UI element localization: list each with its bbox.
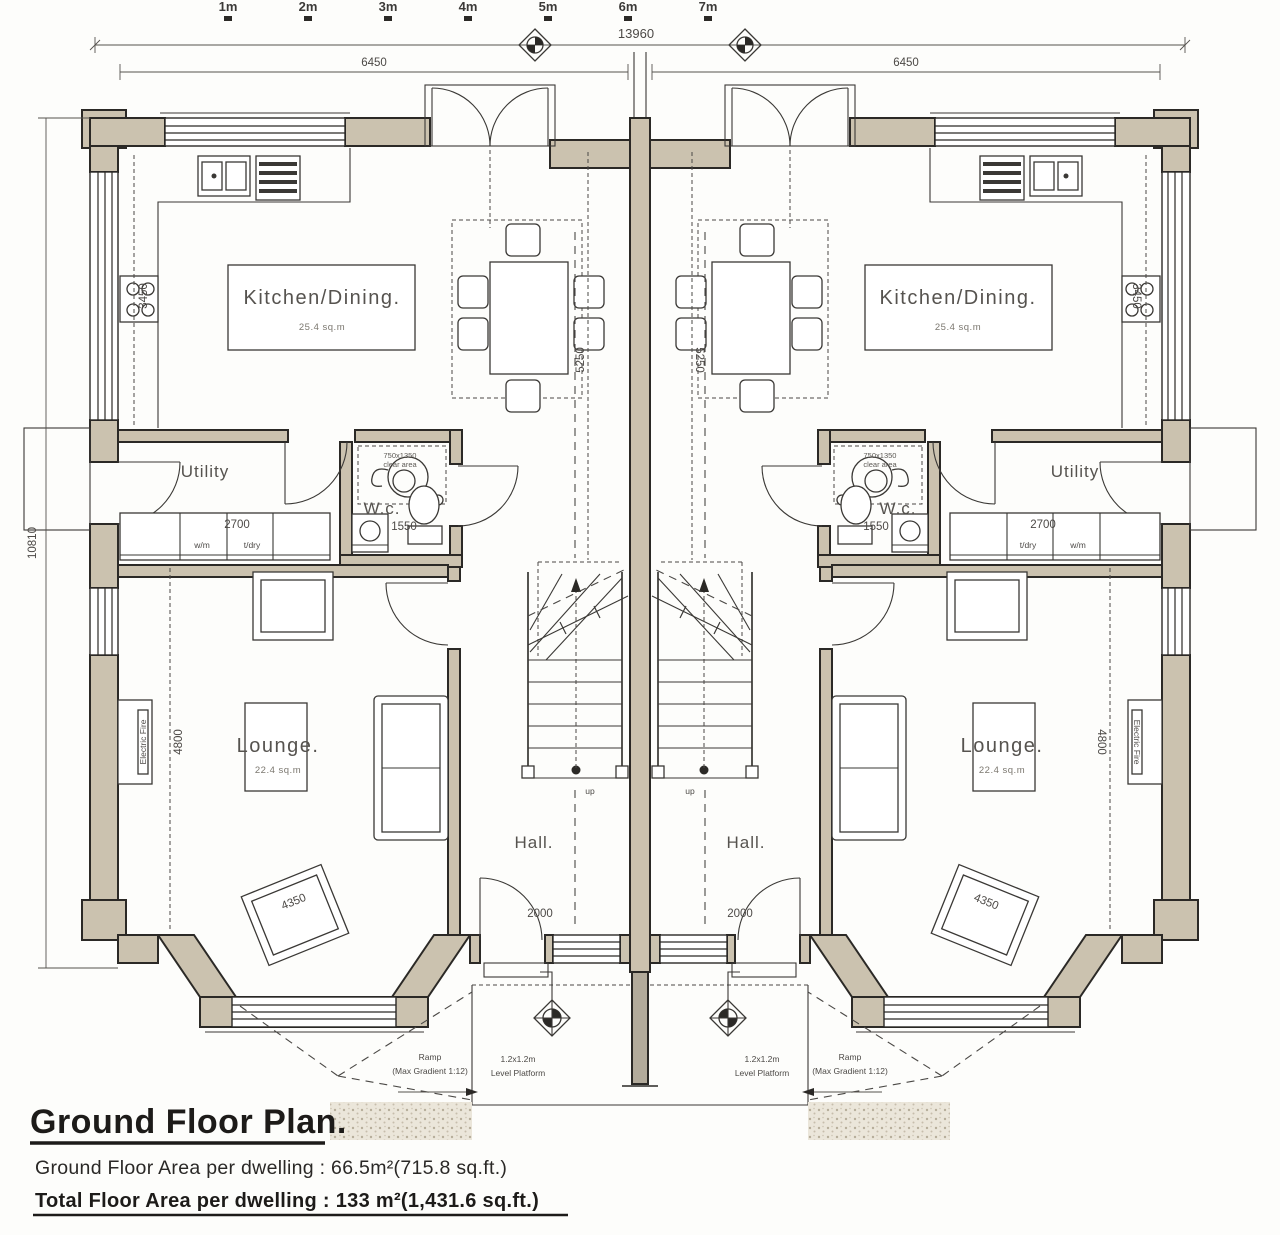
dimension-wc-left: 1550	[391, 521, 417, 533]
label-stairs-up-left: up	[585, 786, 595, 796]
label-ramp-1-right: Ramp	[839, 1052, 862, 1062]
room-label-kitchen-right: Kitchen/Dining.	[879, 287, 1036, 309]
scale-tick-6m: 6m	[619, 0, 638, 14]
label-wc-clear-2-right: clear area	[863, 460, 897, 469]
room-label-lounge-left: Lounge.	[237, 735, 320, 757]
dimension-utility-right: 2700	[1030, 519, 1056, 531]
dimension-kitchen-width-right: 5250	[693, 347, 705, 373]
scale-tick-1m: 1m	[219, 0, 238, 14]
floor-plan-drawing: 1m 2m 3m 4m 5m 6m 7m 13960	[0, 0, 1280, 1235]
room-label-utility-left: Utility	[181, 462, 230, 481]
label-platform-1-right: 1.2x1.2m	[745, 1054, 780, 1064]
label-ramp-2-left: (Max Gradient 1:12)	[392, 1066, 468, 1076]
room-label-wc-right: W.c.	[879, 499, 916, 518]
room-label-hall-right: Hall.	[726, 833, 765, 852]
dimension-lounge-depth-right: 4800	[1095, 729, 1107, 755]
dimension-overall-width: 13960	[618, 26, 654, 41]
label-electric-fire-right: Electric Fire	[1132, 720, 1142, 765]
dimension-hall-door-left: 2000	[527, 908, 553, 920]
label-tumble-dryer-right: t/dry	[1020, 540, 1037, 550]
label-wc-clear-1-left: 750x1350	[384, 451, 417, 460]
label-wc-clear-2-left: clear area	[383, 460, 417, 469]
room-area-kitchen-left: 25.4 sq.m	[299, 322, 345, 333]
dimension-kitchen-depth-right: 3450	[1130, 283, 1142, 309]
label-electric-fire-left: Electric Fire	[138, 719, 148, 764]
label-wc-clear-1-right: 750x1350	[864, 451, 897, 460]
floor-plan-page: 1m 2m 3m 4m 5m 6m 7m 13960	[0, 0, 1280, 1235]
dimension-dwelling-width-left: 6450	[361, 57, 387, 69]
scale-tick-7m: 7m	[699, 0, 718, 14]
room-area-lounge-left: 22.4 sq.m	[255, 765, 301, 776]
scale-tick-2m: 2m	[299, 0, 318, 14]
dimension-dwelling-width-right: 6450	[893, 57, 919, 69]
room-label-utility-right: Utility	[1051, 462, 1100, 481]
room-label-wc-left: W.c.	[363, 499, 400, 518]
room-area-kitchen-right: 25.4 sq.m	[935, 322, 981, 333]
dimension-hall-door-right: 2000	[727, 908, 753, 920]
dimension-lounge-depth-left: 4800	[173, 729, 185, 755]
label-washing-machine-right: w/m	[1069, 540, 1086, 550]
room-label-hall-left: Hall.	[514, 833, 553, 852]
label-ramp-2-right: (Max Gradient 1:12)	[812, 1066, 888, 1076]
dimension-utility-left: 2700	[224, 519, 250, 531]
area-per-dwelling: Ground Floor Area per dwelling : 66.5m²(…	[35, 1157, 507, 1179]
label-washing-machine-left: w/m	[193, 540, 210, 550]
room-area-lounge-right: 22.4 sq.m	[979, 765, 1025, 776]
total-area-per-dwelling: Total Floor Area per dwelling : 133 m²(1…	[35, 1190, 539, 1212]
plan-title: Ground Floor Plan.	[30, 1103, 347, 1141]
scale-tick-4m: 4m	[459, 0, 478, 14]
dimension-kitchen-width-left: 5250	[575, 347, 587, 373]
label-ramp-1-left: Ramp	[419, 1052, 442, 1062]
scale-tick-3m: 3m	[379, 0, 398, 14]
room-label-lounge-right: Lounge.	[961, 735, 1044, 757]
label-platform-2-left: Level Platform	[491, 1068, 545, 1078]
dimension-wc-right: 1550	[863, 521, 889, 533]
room-label-kitchen-left: Kitchen/Dining.	[243, 287, 400, 309]
dimension-overall-depth: 10810	[27, 527, 39, 559]
dimension-kitchen-depth-left: 3450	[138, 283, 150, 309]
label-platform-2-right: Level Platform	[735, 1068, 789, 1078]
label-platform-1-left: 1.2x1.2m	[501, 1054, 536, 1064]
scale-tick-5m: 5m	[539, 0, 558, 14]
label-stairs-up-right: up	[685, 786, 695, 796]
label-tumble-dryer-left: t/dry	[244, 540, 261, 550]
